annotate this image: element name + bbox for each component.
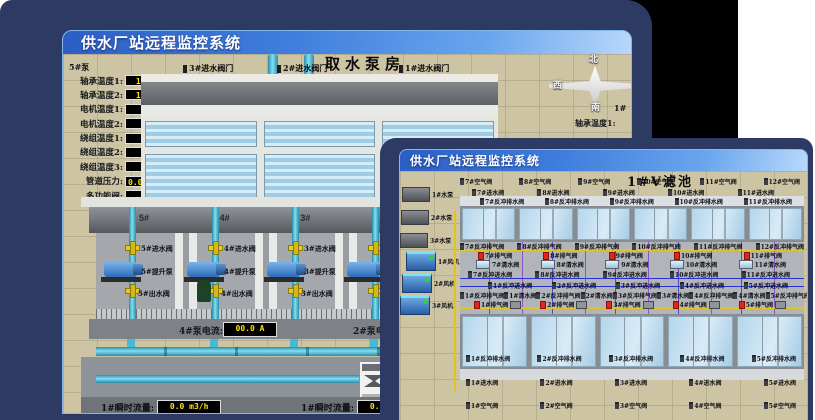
inlet-valve-icon[interactable] [288, 241, 303, 255]
tank-icon [197, 280, 211, 302]
exhaust-valve[interactable]: 11#排气阀 [744, 251, 782, 260]
filter-cell [634, 208, 687, 240]
alarm-indicator-icon [540, 301, 546, 309]
blower[interactable]: 1#风机 [406, 251, 459, 271]
lift-pump-label: 3#提升泵 [304, 267, 336, 277]
outlet-valve-label: 3#出水阀 [301, 289, 333, 299]
valve-icon [756, 243, 760, 250]
alarm-indicator-icon [478, 252, 484, 260]
pump1-panel-header: 1# [614, 103, 626, 113]
blower-label: 1#风机 [438, 257, 459, 266]
alarm-indicator-icon [674, 252, 680, 260]
flow-label: 1#瞬时流量: [101, 401, 154, 414]
air-valve[interactable]: 5#空气阀 [764, 401, 796, 410]
telemetry-label: 轴承温度1: [575, 118, 616, 129]
valve-icon [578, 178, 582, 185]
valve-icon [603, 189, 607, 196]
exhaust-valve[interactable]: 5#排气阀 [739, 300, 786, 309]
backwash-air-valve[interactable]: 9#反冲排气阀 [575, 242, 619, 251]
backwash-drain-valve[interactable]: 8#反冲排水阀 [545, 197, 589, 206]
exhaust-valve[interactable]: 9#排气阀 [609, 251, 643, 260]
valve-icon [488, 282, 492, 289]
inlet-valve[interactable]: 4#进水阀 [689, 378, 721, 387]
backwash-drain-valve[interactable]: 1#反冲排水阀 [466, 354, 510, 363]
valve-icon [764, 402, 768, 409]
valve-icon [744, 282, 748, 289]
valve-icon [610, 198, 614, 205]
backwash-drain-valve[interactable]: 11#反冲排水阀 [744, 197, 792, 206]
inlet-valve[interactable]: 3#进水阀门 [183, 63, 233, 74]
water-pump[interactable]: 3#水泵 [400, 233, 451, 248]
inlet-valve[interactable]: 5#进水阀 [764, 378, 796, 387]
valve-icon [609, 355, 613, 362]
clear-water-valve[interactable]: 11#清水阀 [739, 260, 786, 269]
valve-icon [545, 198, 549, 205]
valve-icon [517, 243, 521, 250]
lift-pump-icon[interactable] [267, 262, 300, 277]
valve-icon [700, 178, 704, 185]
valve-icon [537, 189, 541, 196]
valve-label[interactable]: 5#反冲排气阀 [766, 291, 808, 300]
valve-gallery: 7#反冲排气阀8#反冲排气阀9#反冲排气阀10#反冲排气阀11#反冲排气阀12#… [460, 242, 804, 314]
lift-pump-icon[interactable] [104, 262, 137, 277]
valve-icon [460, 243, 464, 250]
pump5-panel-header: 5#泵 [69, 62, 89, 73]
water-channel [145, 121, 257, 147]
valve-icon [603, 271, 607, 278]
filter-cell [519, 208, 572, 240]
water-channel [264, 154, 376, 201]
valve-icon [472, 189, 476, 196]
backwash-inlet-valve[interactable]: 11#反冲进水阀 [742, 270, 790, 279]
alarm-indicator-icon [606, 301, 612, 309]
exhaust-valve[interactable]: 3#排气阀 [606, 300, 653, 309]
pump-assembly[interactable]: 4#进水阀 4#提升泵 4#出水阀 [184, 207, 248, 325]
tank-box-icon [541, 260, 555, 269]
valve-label[interactable]: 2#反冲排气阀 [536, 291, 580, 300]
valve-icon [680, 355, 684, 362]
flow-readout-left: 1#瞬时流量: 0.0 m3/h [101, 400, 221, 414]
lift-pump-label: 4#提升泵 [224, 267, 256, 277]
alarm-indicator-icon [543, 252, 549, 260]
valve-box-icon [709, 301, 720, 309]
valve-box-icon [643, 301, 654, 309]
water-channel [264, 121, 376, 147]
water-pump[interactable]: 2#水泵 [401, 210, 452, 225]
valve-icon [466, 402, 470, 409]
valve-icon [689, 379, 693, 386]
inlet-valve[interactable]: 2#进水阀门 [277, 63, 327, 74]
pump-base [101, 277, 141, 282]
backwash-drain-valve[interactable]: 4#反冲排水阀 [680, 354, 724, 363]
valve-icon [575, 243, 579, 250]
valve-icon [689, 292, 693, 299]
backwash-air-valve[interactable]: 8#反冲排气阀 [517, 242, 561, 251]
backwash-drain-valve-row-bottom: 1#反冲排水阀2#反冲排水阀3#反冲排水阀4#反冲排水阀5#反冲排水阀 [466, 354, 796, 363]
yellow-header-pipe [454, 211, 456, 391]
telemetry-label: 管道压力: [65, 175, 123, 187]
intake-scene-title: 取水泵房 [325, 53, 405, 74]
outlet-valve-label: 4#出水阀 [221, 289, 253, 299]
exhaust-valve[interactable]: 4#排气阀 [673, 300, 720, 309]
backwash-inlet-valve[interactable]: 5#反冲进水阀 [744, 281, 788, 290]
valve-icon [615, 402, 619, 409]
valve-icon [504, 292, 508, 299]
lift-pump-label: 5#提升泵 [141, 267, 173, 277]
valve-icon [742, 271, 746, 278]
blower[interactable]: 2#风机 [402, 273, 455, 293]
valve-icon [694, 243, 698, 250]
valve-icon [466, 355, 470, 362]
valve-icon [689, 402, 693, 409]
pipe-stub [210, 339, 218, 347]
backwash-inlet-valve[interactable]: 10#反冲进水阀 [670, 270, 718, 279]
pipe-stub [370, 339, 378, 347]
lift-pump-icon[interactable] [347, 262, 380, 277]
valve-icon [552, 282, 556, 289]
backwash-drain-valve-row-top: 7#反冲排水阀8#反冲排水阀9#反冲排水阀10#反冲排水阀11#反冲排水阀 [480, 197, 792, 206]
valve-icon [581, 292, 585, 299]
air-valve-row-top: 7#空气阀8#空气阀9#空气阀10#空气阀11#空气阀12#空气阀 [460, 177, 800, 186]
pump4-current-label: 4#泵电流: [179, 324, 223, 337]
filter-cell [749, 208, 802, 240]
pump-base [344, 277, 384, 282]
valve-icon [738, 189, 742, 196]
filter-cells-top [460, 206, 804, 242]
backwash-drain-valve[interactable]: 2#反冲排水阀 [537, 354, 581, 363]
valve-icon [537, 355, 541, 362]
valve-label[interactable]: 2#清水阀 [581, 291, 613, 300]
tank-box-icon [739, 260, 753, 269]
valve-label[interactable]: 1#清水阀 [504, 291, 536, 300]
valve-label[interactable]: 4#反冲排气阀 [689, 291, 733, 300]
front-window-title: 供水厂站远程监控系统 [410, 152, 540, 169]
water-channel [145, 154, 257, 201]
flow-value: 0.0 m3/h [157, 400, 221, 414]
alarm-indicator-icon [609, 252, 615, 260]
pump-label: 3#水泵 [430, 236, 451, 245]
valve-icon [460, 178, 464, 185]
valve-icon [657, 292, 661, 299]
pipe-stub [127, 339, 135, 347]
clear-water-valve[interactable]: 7#清水阀 [476, 260, 519, 269]
compass-north-label: 北 [589, 52, 598, 65]
back-window-titlebar[interactable]: 供水厂站远程监控系统 [63, 31, 631, 54]
valve-label[interactable]: 3#反冲排气阀 [613, 291, 657, 300]
backwash-drain-valve[interactable]: 10#反冲排水阀 [675, 197, 723, 206]
backwash-air-valve[interactable]: 11#反冲排气阀 [694, 242, 742, 251]
backwash-drain-valve[interactable]: 9#反冲排水阀 [610, 197, 654, 206]
filter-cell [577, 208, 630, 240]
air-valve[interactable]: 10#空气阀 [637, 177, 673, 186]
valve-icon [460, 292, 464, 299]
valve-icon [668, 189, 672, 196]
valve-icon [615, 379, 619, 386]
valve-icon [480, 198, 484, 205]
backwash-inlet-valve-row-bottom: 1#反冲进水阀2#反冲进水阀3#反冲进水阀4#反冲进水阀5#反冲进水阀 [488, 281, 788, 290]
backwash-inlet-valve[interactable]: 9#反冲进水阀 [603, 270, 647, 279]
telemetry-label: 电机温度2: [65, 118, 123, 130]
backwash-inlet-valve-row-top: 7#反冲进水阀8#反冲进水阀9#反冲进水阀10#反冲进水阀11#反冲进水阀 [468, 270, 790, 279]
clear-water-valve[interactable]: 10#清水阀 [670, 260, 717, 269]
inlet-valve[interactable]: 1#进水阀门 [399, 63, 449, 74]
telemetry-label: 绕组温度1: [65, 132, 123, 144]
telemetry-label: 绕组温度2: [65, 146, 123, 158]
backwash-inlet-valve[interactable]: 1#反冲进水阀 [488, 281, 532, 290]
backwash-air-valve[interactable]: 10#反冲排气阀 [632, 242, 680, 251]
pump-box-icon [400, 233, 428, 248]
backwash-inlet-valve[interactable]: 7#反冲进水阀 [468, 270, 512, 279]
exhaust-valve[interactable]: 7#排气阀 [478, 251, 512, 260]
flow-label: 1#瞬时流量: [301, 401, 354, 414]
valve-box-icon [775, 301, 786, 309]
telemetry-label: 电机温度1: [65, 103, 123, 115]
inlet-valve[interactable]: 3#进水阀 [615, 378, 647, 387]
valve-icon [616, 282, 620, 289]
valve-icon [519, 178, 523, 185]
backwash-inlet-valve[interactable]: 4#反冲进水阀 [680, 281, 724, 290]
telemetry-label: 绕组温度3: [65, 161, 123, 173]
backwash-drain-valve[interactable]: 7#反冲排水阀 [480, 197, 524, 206]
pump-box-icon [401, 210, 429, 225]
valve-icon [764, 178, 768, 185]
exhaust-valve[interactable]: 10#排气阀 [674, 251, 712, 260]
air-valve[interactable]: 7#空气阀 [460, 177, 492, 186]
clear-water-valve[interactable]: 9#清水阀 [605, 260, 648, 269]
clear-water-valve-row-top: 7#清水阀8#清水阀9#清水阀10#清水阀11#清水阀 [476, 260, 786, 269]
inlet-valve-label: 4#进水阀 [224, 244, 256, 254]
exhaust-valve-row-top: 7#排气阀8#排气阀9#排气阀10#排气阀11#排气阀 [478, 251, 782, 260]
inlet-valve-row-bottom: 1#进水阀2#进水阀3#进水阀4#进水阀5#进水阀 [466, 378, 796, 387]
desktop: 供水厂站远程监控系统 5#泵 轴承温度1: 100.0℃ 轴承温度2: 100.… [0, 0, 815, 420]
tank-box-icon [605, 260, 619, 269]
valve-icon [540, 379, 544, 386]
front-window-filter-pool: 供水厂站远程监控系统 1#V滤池 1#水泵 2#水泵 3#水泵 [399, 149, 808, 420]
backwash-air-valve[interactable]: 7#反冲排气阀 [460, 242, 504, 251]
air-valve-row-bottom: 1#空气阀2#空气阀3#空气阀4#空气阀5#空气阀 [466, 401, 796, 410]
alarm-indicator-icon [744, 252, 750, 260]
inlet-valve-icon[interactable] [208, 241, 223, 255]
air-valve[interactable]: 9#空气阀 [578, 177, 610, 186]
building-deck-band [141, 82, 498, 105]
valve-icon [535, 271, 539, 278]
air-valve[interactable]: 4#空气阀 [689, 401, 721, 410]
alarm-indicator-icon [739, 301, 745, 309]
air-valve[interactable]: 1#空气阀 [466, 401, 498, 410]
valve-icon [752, 355, 756, 362]
valve-icon [670, 271, 674, 278]
pump-assembly[interactable]: 5#进水阀 5#提升泵 5#出水阀 [101, 207, 165, 325]
blower-label: 3#风机 [432, 301, 453, 310]
tank-box-icon [476, 260, 490, 269]
blower-label: 2#风机 [434, 279, 455, 288]
air-valve[interactable]: 8#空气阀 [519, 177, 551, 186]
pump-base [264, 277, 304, 282]
clear-water-valve[interactable]: 8#清水阀 [541, 260, 584, 269]
pump-box-icon [402, 187, 430, 202]
inlet-valve[interactable]: 1#进水阀 [466, 378, 498, 387]
exhaust-valve[interactable]: 1#排气阀 [474, 300, 521, 309]
filter-pool-scene: 1#V滤池 1#水泵 2#水泵 3#水泵 [400, 171, 807, 420]
backwash-drain-valve[interactable]: 5#反冲排水阀 [752, 354, 796, 363]
backwash-inlet-valve[interactable]: 3#反冲进水阀 [616, 281, 660, 290]
front-desktop-panel: 供水厂站远程监控系统 1#V滤池 1#水泵 2#水泵 3#水泵 [380, 138, 813, 420]
valve-icon [744, 198, 748, 205]
air-valve[interactable]: 12#空气阀 [764, 177, 800, 186]
air-valve[interactable]: 11#空气阀 [700, 177, 736, 186]
filter-cell [691, 208, 744, 240]
front-window-titlebar[interactable]: 供水厂站远程监控系统 [400, 150, 807, 171]
backwash-air-valve[interactable]: 12#反冲排气阀 [756, 242, 804, 251]
valve-icon [680, 282, 684, 289]
valve-icon [540, 402, 544, 409]
valve-icon [675, 198, 679, 205]
valve-icon [733, 292, 737, 299]
valve-icon [466, 379, 470, 386]
pump-assembly[interactable]: 3#进水阀 3#提升泵 3#出水阀 [264, 207, 328, 325]
valve-box-icon [510, 301, 521, 309]
backwash-air-valve-row-top: 7#反冲排气阀8#反冲排气阀9#反冲排气阀10#反冲排气阀11#反冲排气阀12#… [460, 242, 804, 251]
valve-box-icon [576, 301, 587, 309]
air-valve[interactable]: 2#空气阀 [540, 401, 572, 410]
valve-icon [468, 271, 472, 278]
valve-icon [764, 379, 768, 386]
valve-icon [536, 292, 540, 299]
valve-icon [632, 243, 636, 250]
exhaust-valve-row-bottom: 1#排气阀2#排气阀3#排气阀4#排气阀5#排气阀 [474, 300, 786, 309]
compass-west-label: 西 [553, 78, 562, 91]
valve-icon [766, 292, 770, 299]
lift-pump-icon[interactable] [187, 262, 220, 277]
valve-label[interactable]: 1#反冲排气阀 [460, 291, 504, 300]
pipe-stub [290, 339, 298, 347]
inlet-valve-label: 3#进水阀 [304, 244, 336, 254]
blower-box-icon [402, 273, 432, 293]
exhaust-valve[interactable]: 8#排气阀 [543, 251, 577, 260]
inlet-valve-icon[interactable] [125, 241, 140, 255]
inlet-valve-label: 5#进水阀 [141, 244, 173, 254]
tank-box-icon [670, 260, 684, 269]
blower-box-icon [406, 251, 436, 271]
backwash-inlet-valve[interactable]: 2#反冲进水阀 [552, 281, 596, 290]
pump-label: 2#水泵 [431, 213, 452, 222]
building-wall [141, 105, 498, 117]
air-valve[interactable]: 3#空气阀 [615, 401, 647, 410]
blower-box-icon [400, 295, 430, 315]
alarm-indicator-icon [673, 301, 679, 309]
valve-icon [637, 178, 641, 185]
blower[interactable]: 3#风机 [400, 295, 453, 315]
outlet-valve-label: 5#出水阀 [138, 289, 170, 299]
inlet-valve[interactable]: 2#进水阀 [540, 378, 572, 387]
backwash-inlet-valve[interactable]: 8#反冲进水阀 [535, 270, 579, 279]
pump-label: 1#水泵 [432, 190, 453, 199]
valve-label[interactable]: 4#清水阀 [733, 291, 765, 300]
valve-icon [613, 292, 617, 299]
telemetry-label: 轴承温度2: [65, 89, 123, 101]
compass-south-label: 南 [591, 100, 600, 113]
water-pump[interactable]: 1#水泵 [402, 187, 453, 202]
pump4-current-value: 00.0 A [223, 322, 277, 337]
telemetry-label: 轴承温度1: [65, 75, 123, 87]
clear-water-and-backwash-air-row-bottom: 1#反冲排气阀1#清水阀2#反冲排气阀2#清水阀3#反冲排气阀3#清水阀4#反冲… [460, 291, 804, 300]
backwash-drain-valve[interactable]: 3#反冲排水阀 [609, 354, 653, 363]
back-window-title: 供水厂站远程监控系统 [81, 32, 241, 53]
exhaust-valve[interactable]: 2#排气阀 [540, 300, 587, 309]
filter-cell [462, 208, 515, 240]
alarm-indicator-icon [474, 301, 480, 309]
valve-label[interactable]: 3#清水阀 [657, 291, 689, 300]
